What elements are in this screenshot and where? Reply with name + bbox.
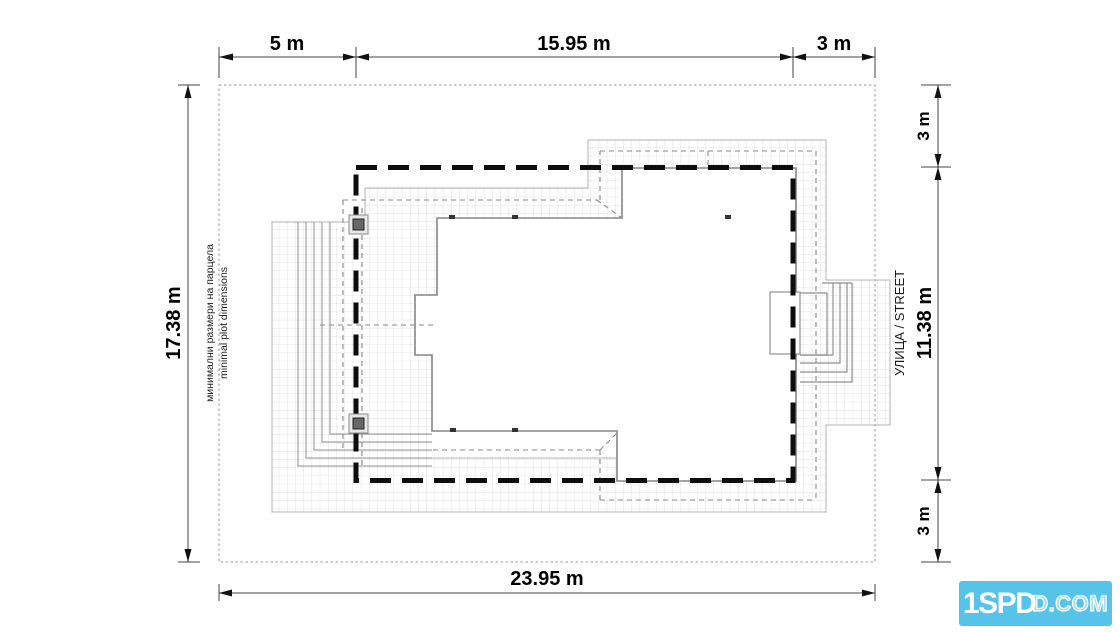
site-plan-page: 5 m 15.95 m 3 m 23.95 m 17.38 m 3 m 11.3… — [0, 0, 1120, 632]
dim-right-bottom-label: 3 m — [914, 506, 933, 535]
dim-right-mid-label: 11.38 m — [914, 287, 936, 359]
logo: 1SPD D.COM — [959, 581, 1112, 626]
dim-right-top-label: 3 m — [914, 111, 933, 140]
logo-outline-text: D.COM — [1032, 593, 1108, 615]
plot-note-en: minimal plot dimensions — [218, 267, 230, 379]
eave-gap-band — [432, 431, 617, 458]
plot-note-bg: минимални размери на парцела — [204, 244, 216, 402]
street-label: УЛИЦА / STREET — [892, 270, 907, 376]
dim-top-right-label: 3 m — [817, 33, 851, 55]
dim-top-mid-label: 15.95 m — [537, 33, 610, 55]
dim-left-label: 17.38 m — [163, 286, 185, 359]
logo-solid-text: 1SPD — [963, 589, 1035, 619]
dim-bottom-label: 23.95 m — [510, 568, 583, 590]
dim-top-left-label: 5 m — [270, 33, 304, 55]
site-plan-svg: 5 m 15.95 m 3 m 23.95 m 17.38 m 3 m 11.3… — [0, 0, 1120, 632]
